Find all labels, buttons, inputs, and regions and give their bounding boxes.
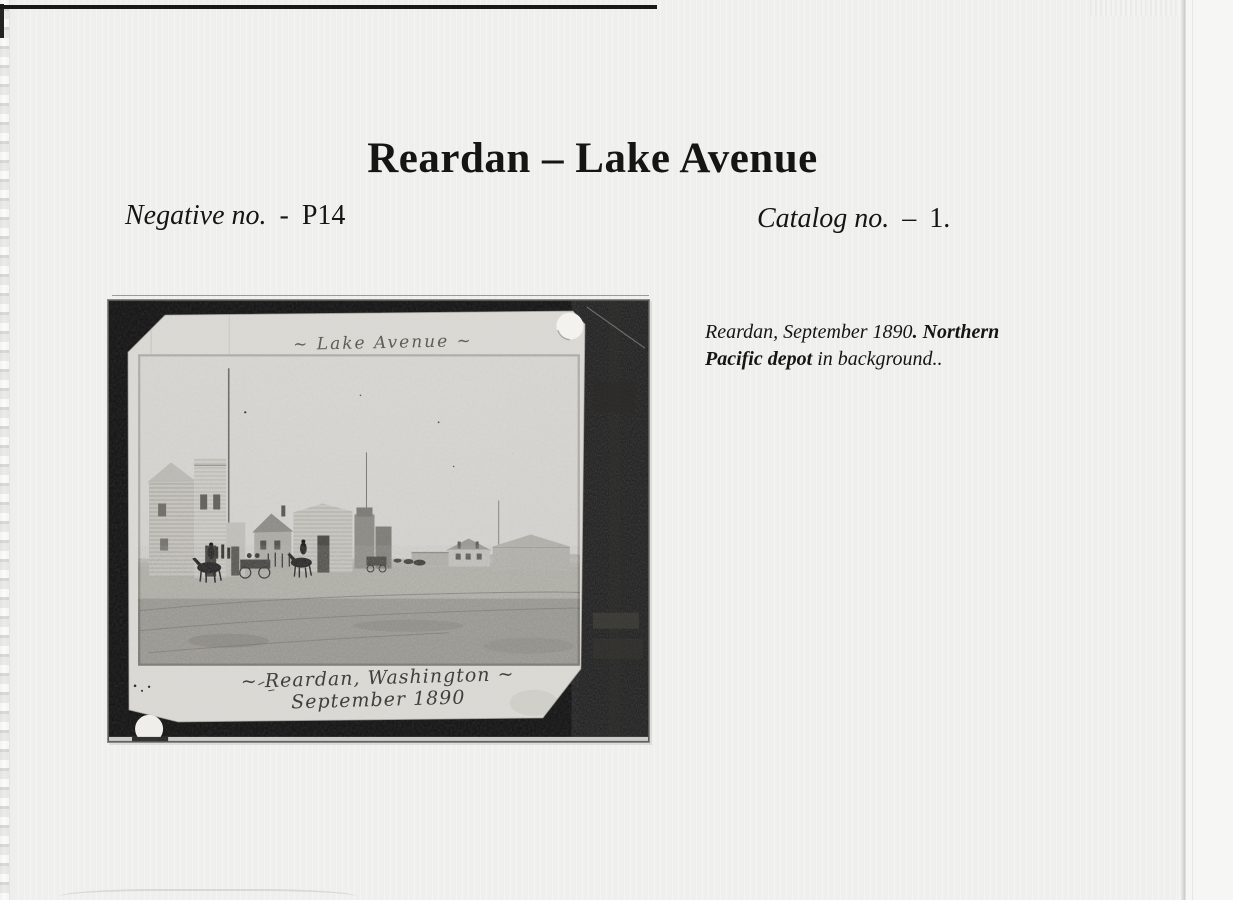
tape-mark — [593, 613, 639, 629]
negative-value: P14 — [302, 200, 346, 231]
caption-seg-2: . — [913, 321, 923, 343]
catalog-label: Catalog no. — [757, 203, 889, 234]
page-edge-line — [1192, 0, 1193, 900]
catalog-value: 1. — [929, 203, 950, 234]
page-title: Reardan – Lake Avenue — [0, 134, 1185, 183]
scanner-background — [1185, 0, 1233, 900]
photo-scene — [138, 354, 580, 666]
sleeve-texture — [1090, 0, 1185, 16]
catalog-number-line: Catalog no.–1. — [757, 203, 950, 235]
handwritten-caption: ~ Reardan, Washington ~ September 1890 — [217, 663, 538, 717]
tape-mark — [593, 639, 643, 659]
catalog-separator: – — [902, 203, 916, 234]
sleeve-top-edge — [0, 5, 657, 9]
scanned-album-page: Reardan – Lake Avenue Negative no.-P14 C… — [0, 0, 1233, 900]
sleeve-corner-mark — [0, 4, 4, 38]
caption-seg-1: Reardan, September 1890 — [705, 321, 913, 343]
negative-number-line: Negative no.-P14 — [125, 200, 345, 232]
mounted-photograph: ~ Lake Avenue ~ ~ Reardan, Washington ~ … — [107, 299, 650, 743]
caption-seg-4: in background.. — [812, 348, 942, 370]
negative-label: Negative no. — [125, 200, 267, 231]
film-grain — [138, 354, 580, 666]
mount-outer-line — [112, 295, 649, 296]
page-curl-shadow — [58, 889, 358, 905]
white-spot-top-right — [556, 313, 583, 340]
negative-separator: - — [280, 200, 289, 231]
photo-description: Reardan, September 1890. Northern Pacifi… — [705, 319, 1027, 373]
